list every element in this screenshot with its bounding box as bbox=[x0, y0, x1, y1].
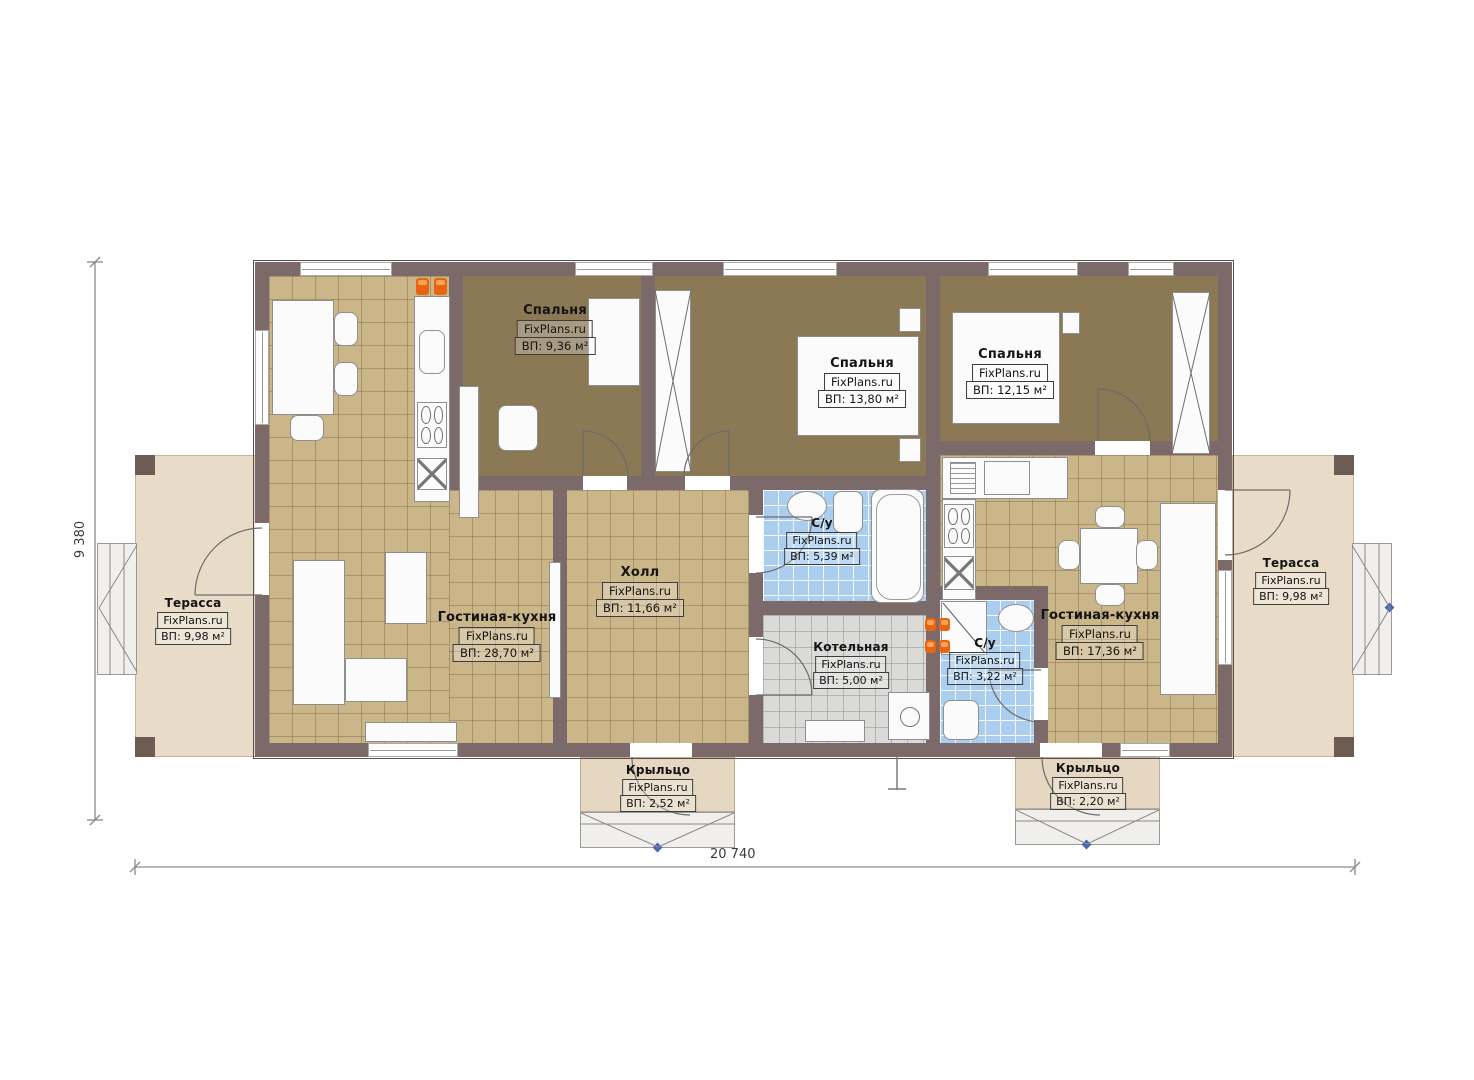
room-label-hall: Холл FixPlans.ru ВП: 11,66 м² bbox=[596, 565, 684, 617]
room-area: ВП: 9,36 м² bbox=[515, 337, 596, 355]
window-living-right-side bbox=[1218, 570, 1232, 665]
dimension-height-label: 9 380 bbox=[73, 521, 88, 558]
watermark: FixPlans.ru bbox=[459, 627, 535, 645]
floor-plan: Спальня FixPlans.ru ВП: 9,36 м² Спальня … bbox=[0, 0, 1474, 1080]
sink-bathroom2 bbox=[998, 604, 1034, 632]
watermark: FixPlans.ru bbox=[517, 320, 593, 338]
watermark: FixPlans.ru bbox=[1255, 572, 1326, 589]
room-area: ВП: 3,22 м² bbox=[947, 668, 1023, 685]
window-bedroom1-top bbox=[575, 262, 653, 276]
room-area: ВП: 9,98 м² bbox=[1253, 588, 1329, 605]
door-opening-bathroom1 bbox=[749, 515, 763, 573]
room-name: Холл bbox=[621, 565, 660, 580]
single-bed bbox=[588, 298, 640, 386]
room-area: ВП: 5,39 м² bbox=[784, 548, 860, 565]
wardrobe-bedroom2 bbox=[655, 290, 691, 472]
wardrobe-bedroom3 bbox=[1172, 292, 1210, 454]
sofa-left-vertical bbox=[293, 560, 345, 705]
room-label-bedroom-1: Спальня FixPlans.ru ВП: 9,36 м² bbox=[515, 303, 596, 355]
room-name: Котельная bbox=[813, 640, 888, 654]
watermark: FixPlans.ru bbox=[602, 582, 678, 600]
watermark: FixPlans.ru bbox=[622, 779, 693, 796]
nightstand bbox=[899, 438, 921, 462]
door-opening-bedroom2 bbox=[685, 476, 730, 490]
watermark: FixPlans.ru bbox=[972, 364, 1048, 382]
terrace-left-post-top bbox=[135, 455, 155, 475]
room-area: ВП: 9,98 м² bbox=[155, 628, 231, 645]
room-name: Терасса bbox=[1263, 556, 1320, 570]
chair bbox=[1095, 506, 1125, 528]
room-label-bathroom-2: С/у FixPlans.ru ВП: 3,22 м² bbox=[947, 636, 1023, 685]
wall-bathroom-boiler bbox=[763, 601, 926, 615]
room-label-living-kitchen-left: Гостиная-кухня FixPlans.ru ВП: 28,70 м² bbox=[438, 610, 557, 662]
vent-icon bbox=[434, 278, 447, 295]
toilet-bathroom2 bbox=[943, 700, 979, 740]
room-name: С/у bbox=[811, 516, 833, 530]
chair bbox=[334, 312, 358, 346]
dish-drainer bbox=[950, 462, 976, 494]
room-name: Спальня bbox=[523, 303, 587, 318]
chair bbox=[1058, 540, 1080, 570]
wall-center-vertical bbox=[926, 276, 940, 743]
terrace-right-post-bottom bbox=[1334, 737, 1354, 757]
door-opening-bedroom1 bbox=[583, 476, 627, 490]
room-label-terrace-right: Терасса FixPlans.ru ВП: 9,98 м² bbox=[1253, 556, 1329, 605]
chair bbox=[1136, 540, 1158, 570]
door-opening-bedroom3 bbox=[1095, 441, 1150, 455]
terrace-left-steps bbox=[97, 543, 137, 675]
room-area: ВП: 17,36 м² bbox=[1056, 642, 1144, 660]
window-living-right-top bbox=[1128, 262, 1174, 276]
sofa-left-horizontal bbox=[345, 658, 407, 702]
desk bbox=[459, 386, 479, 518]
tv-stand bbox=[365, 722, 457, 742]
watermark: FixPlans.ru bbox=[1052, 777, 1123, 794]
kitchen-sink-left bbox=[419, 330, 445, 374]
door-opening-terrace-left bbox=[255, 523, 269, 595]
desk-chair bbox=[498, 405, 538, 451]
room-name: Крыльцо bbox=[1056, 761, 1120, 775]
chair bbox=[290, 415, 324, 441]
room-name: Крыльцо bbox=[626, 763, 690, 777]
sofa-right bbox=[1160, 503, 1216, 695]
chair bbox=[1095, 584, 1125, 606]
room-name: С/у bbox=[974, 636, 996, 650]
boiler-dial bbox=[900, 707, 920, 727]
room-label-porch-left: Крыльцо FixPlans.ru ВП: 2,52 м² bbox=[620, 763, 696, 812]
room-area: ВП: 12,15 м² bbox=[966, 381, 1054, 399]
room-name: Гостиная-кухня bbox=[438, 610, 557, 625]
room-label-bathroom-1: С/у FixPlans.ru ВП: 5,39 м² bbox=[784, 516, 860, 565]
nightstand bbox=[899, 308, 921, 332]
boiler-flue bbox=[888, 757, 906, 790]
dimension-width-label: 20 740 bbox=[710, 847, 756, 862]
room-area: ВП: 5,00 м² bbox=[813, 672, 889, 689]
room-area: ВП: 11,66 м² bbox=[596, 599, 684, 617]
door-opening-boiler bbox=[749, 637, 763, 695]
boiler-unit bbox=[888, 692, 930, 740]
nightstand bbox=[1062, 312, 1080, 334]
room-area: ВП: 2,52 м² bbox=[620, 795, 696, 812]
coffee-table bbox=[385, 552, 427, 624]
watermark: FixPlans.ru bbox=[786, 532, 857, 549]
room-label-living-kitchen-right: Гостиная-кухня FixPlans.ru ВП: 17,36 м² bbox=[1041, 608, 1160, 660]
dining-table-left bbox=[272, 300, 334, 415]
cabinet-x-right bbox=[944, 556, 974, 590]
cabinet-x-left bbox=[417, 458, 447, 490]
vent-icon bbox=[925, 640, 936, 653]
room-name: Гостиная-кухня bbox=[1041, 608, 1160, 623]
room-label-boiler-room: Котельная FixPlans.ru ВП: 5,00 м² bbox=[813, 640, 889, 689]
bathtub-inner bbox=[876, 494, 921, 600]
door-opening-bathroom2 bbox=[1034, 668, 1048, 720]
terrace-right-post-top bbox=[1334, 455, 1354, 475]
watermark: FixPlans.ru bbox=[949, 652, 1020, 669]
chair bbox=[334, 362, 358, 396]
door-opening-porch-left bbox=[630, 743, 692, 757]
door-opening-porch-right bbox=[1040, 743, 1102, 757]
boiler-cabinet bbox=[805, 720, 865, 742]
vent-icon bbox=[925, 618, 936, 631]
window-bedroom2-top bbox=[723, 262, 837, 276]
vent-icon bbox=[939, 618, 950, 631]
room-name: Терасса bbox=[165, 596, 222, 610]
window-living-right-bottom bbox=[1120, 743, 1170, 757]
window-bedroom3-top bbox=[988, 262, 1078, 276]
stove-left bbox=[417, 402, 447, 448]
stove-right bbox=[944, 504, 974, 548]
bathtub bbox=[871, 489, 924, 603]
room-area: ВП: 13,80 м² bbox=[818, 390, 906, 408]
dining-table-right bbox=[1080, 528, 1138, 584]
kitchen-sink-right bbox=[984, 461, 1030, 495]
wall-bedroom1-right bbox=[641, 276, 655, 490]
vent-icon bbox=[416, 278, 429, 295]
watermark: FixPlans.ru bbox=[815, 656, 886, 673]
terrace-right-deck bbox=[1232, 455, 1354, 757]
room-name: Спальня bbox=[978, 347, 1042, 362]
room-label-terrace-left: Терасса FixPlans.ru ВП: 9,98 м² bbox=[155, 596, 231, 645]
watermark: FixPlans.ru bbox=[824, 373, 900, 391]
room-name: Спальня bbox=[830, 356, 894, 371]
room-label-bedroom-2: Спальня FixPlans.ru ВП: 13,80 м² bbox=[818, 356, 906, 408]
room-area: ВП: 28,70 м² bbox=[453, 644, 541, 662]
window-kitchen-top bbox=[300, 262, 392, 276]
room-label-porch-right: Крыльцо FixPlans.ru ВП: 2,20 м² bbox=[1050, 761, 1126, 810]
terrace-left-post-bottom bbox=[135, 737, 155, 757]
door-opening-terrace-right bbox=[1218, 490, 1232, 560]
room-label-bedroom-3: Спальня FixPlans.ru ВП: 12,15 м² bbox=[966, 347, 1054, 399]
watermark: FixPlans.ru bbox=[157, 612, 228, 629]
room-area: ВП: 2,20 м² bbox=[1050, 793, 1126, 810]
window-living-left-bottom bbox=[368, 743, 458, 757]
watermark: FixPlans.ru bbox=[1062, 625, 1138, 643]
window-living-left-side bbox=[255, 330, 269, 425]
